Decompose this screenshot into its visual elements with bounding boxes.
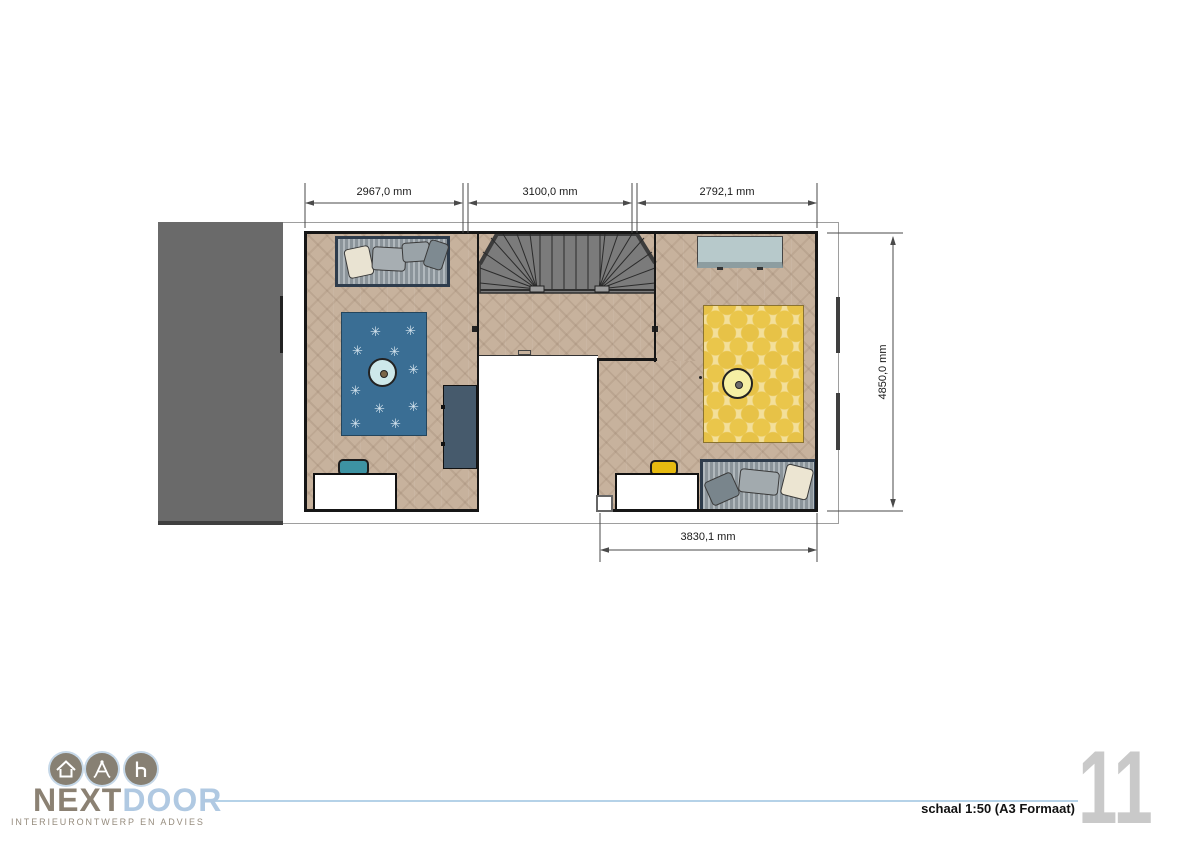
- brand-name-secondary: DOOR: [122, 782, 222, 818]
- floor-plan-sheet: ✳✳✳✳✳✳✳✳✳✳: [0, 0, 1191, 842]
- dimension-label-right: 4850,0 mm: [877, 327, 891, 417]
- brand-name: NEXTDOOR: [33, 786, 222, 814]
- page-number: 11: [1078, 748, 1153, 829]
- dimension-label-top-middle: 3100,0 mm: [492, 186, 608, 198]
- brand-tagline: INTERIEURONTWERP EN ADVIES: [11, 817, 205, 827]
- scale-note: schaal 1:50 (A3 Formaat): [878, 801, 1075, 816]
- dimension-label-bottom: 3830,1 mm: [650, 531, 766, 543]
- dimension-label-top-right: 2792,1 mm: [669, 186, 785, 198]
- brand-name-primary: NEXT: [33, 782, 122, 818]
- dimension-lines: [0, 0, 1191, 842]
- dimension-label-top-left: 2967,0 mm: [326, 186, 442, 198]
